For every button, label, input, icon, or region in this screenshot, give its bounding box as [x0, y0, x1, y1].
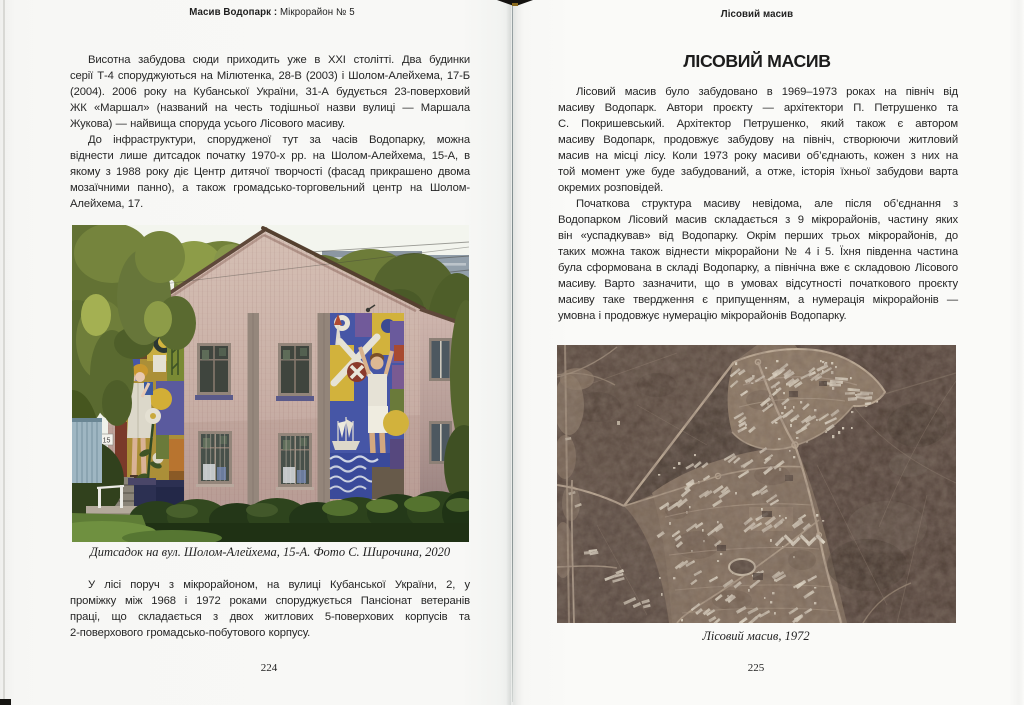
svg-text:15: 15: [103, 438, 111, 445]
